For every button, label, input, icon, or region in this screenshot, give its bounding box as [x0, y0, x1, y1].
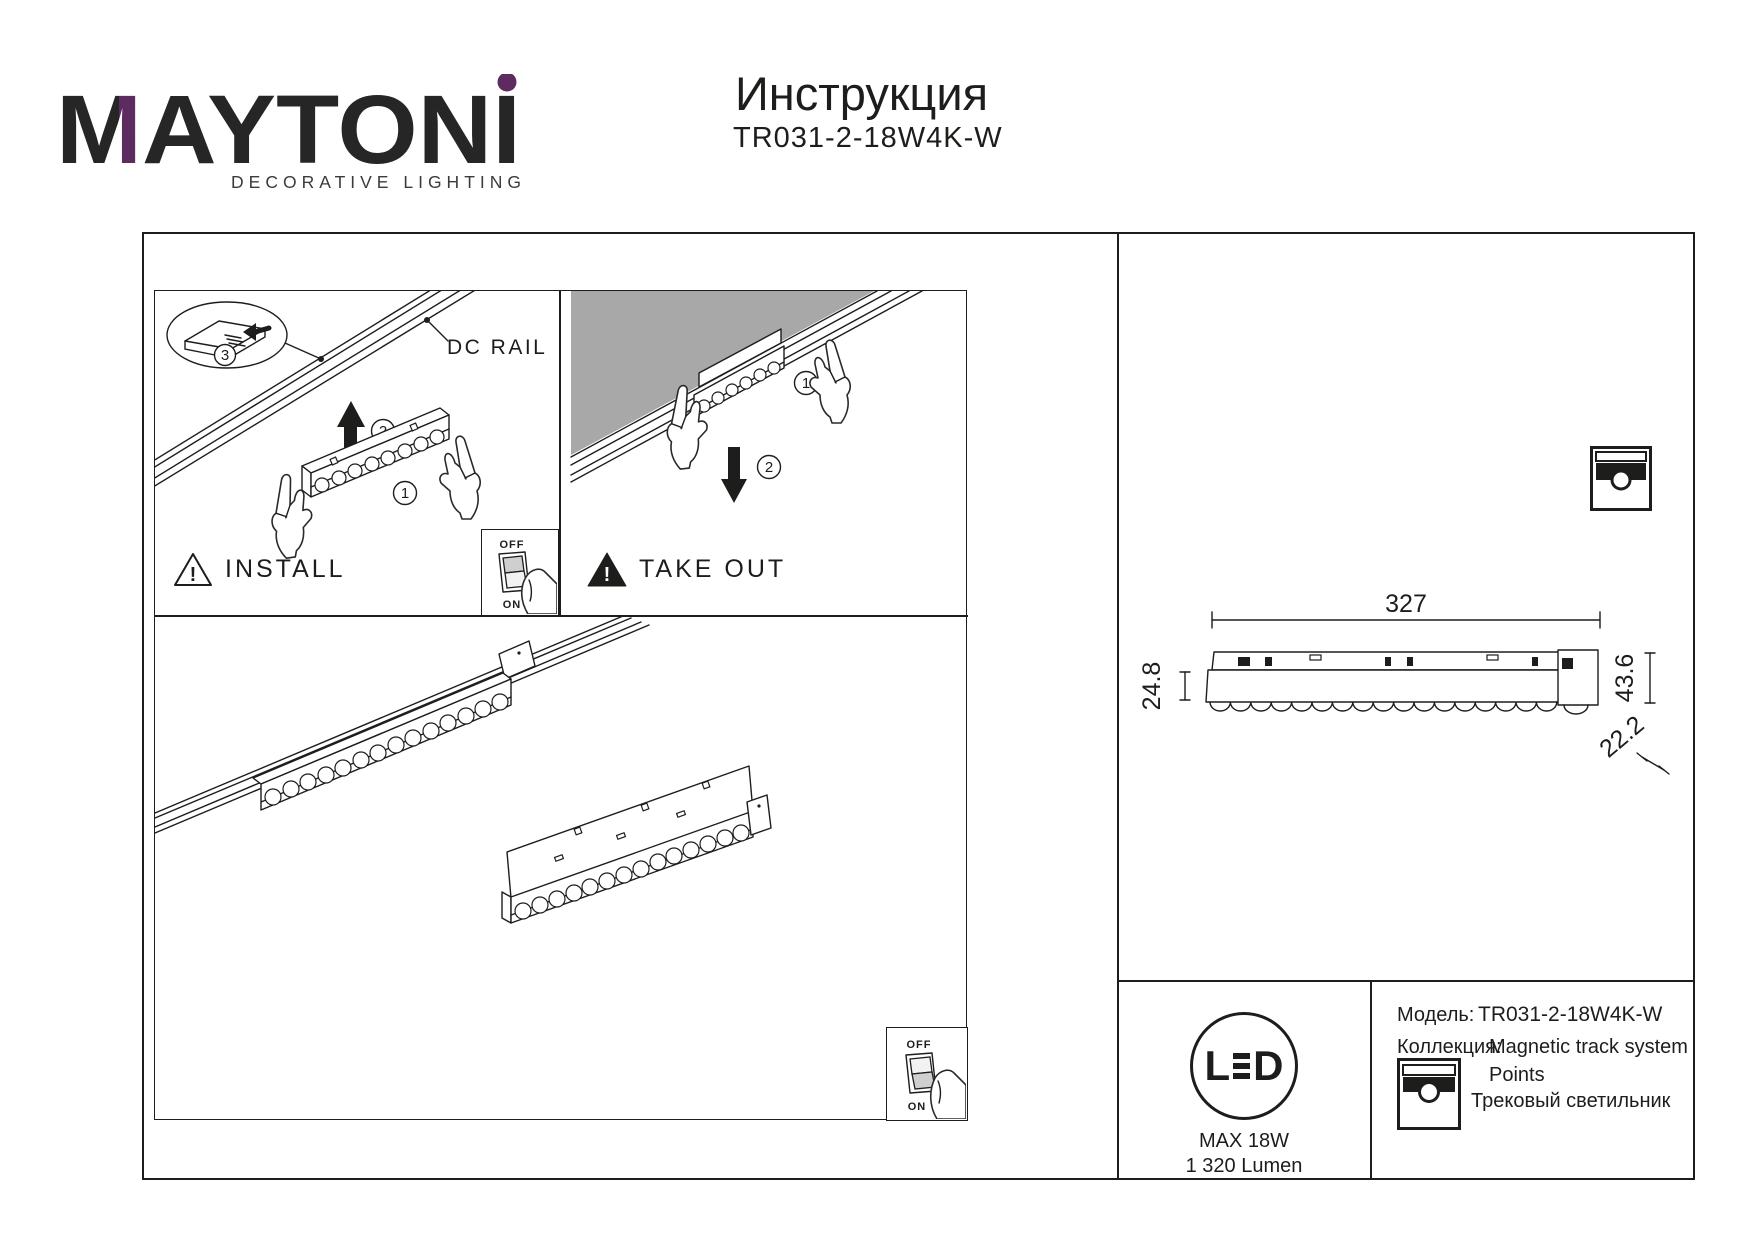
lumens: 1 320 Lumen [1144, 1155, 1344, 1178]
power-off-switch-panel: OFF ON [481, 529, 559, 616]
right-hand [810, 340, 850, 423]
arrow-down-icon [721, 447, 747, 503]
step-1-badge: 1 [802, 375, 810, 392]
points-collection-icon [1397, 1058, 1461, 1130]
svg-text:MAYTONI: MAYTONI [56, 75, 521, 174]
track-light-standalone [502, 766, 771, 923]
pressing-hand [931, 1070, 966, 1119]
max-power: MAX 18W [1144, 1130, 1344, 1153]
panel-divider [1117, 232, 1119, 1178]
led-letter-l: L [1205, 1045, 1231, 1087]
brand-logo: MAYTONI [56, 74, 536, 174]
model-value: TR031-2-18W4K-W [1478, 1003, 1662, 1027]
dimension-drawing: 327 24.8 43.6 22.2 [1130, 560, 1690, 790]
fixture-side-view [1206, 650, 1598, 714]
brand-tagline: DECORATIVE LIGHTING [56, 172, 526, 193]
track-light-on-rail [253, 641, 535, 810]
brand-letters: AYTONI [142, 75, 521, 174]
instruction-sheet: { "colors": {"ink": "#1d1d1b", "purple":… [0, 0, 1754, 1241]
right-hand [440, 436, 480, 519]
power-on-switch-panel: OFF ON [886, 1027, 968, 1121]
depth-dim-line [1637, 753, 1669, 774]
model-number: TR031-2-18W4K-W [733, 122, 1003, 155]
led-badge: L D [1190, 1012, 1298, 1120]
depth-dimension: 22.2 [1594, 711, 1649, 764]
product-type: Трековый светильник [1471, 1090, 1670, 1113]
warning-filled-icon: ! [587, 551, 627, 588]
body-height-dimension: 24.8 [1138, 662, 1166, 711]
total-height-dim-line [1645, 653, 1655, 703]
track-light-fixture [302, 408, 449, 497]
takeout-label: TAKE OUT [639, 555, 786, 584]
warning-outline-icon: ! [173, 551, 213, 588]
pressing-hand [522, 569, 557, 614]
led-letter-e-icon [1233, 1053, 1250, 1080]
collection-label: Коллекция: [1397, 1036, 1502, 1059]
off-label: OFF [907, 1039, 932, 1051]
install-label: INSTALL [225, 555, 346, 584]
step-1-badge: 1 [401, 485, 409, 502]
collection-name: Points [1489, 1064, 1545, 1087]
length-dimension: 327 [1385, 590, 1427, 618]
collection-value: Magnetic track system [1489, 1036, 1688, 1059]
svg-text:!: ! [604, 564, 611, 586]
points-collection-icon [1590, 446, 1652, 511]
on-label: ON [503, 599, 522, 611]
led-letter-d: D [1253, 1045, 1283, 1087]
info-table-top-border [1117, 980, 1695, 982]
info-table-divider [1370, 980, 1372, 1178]
brand-letter-m: M [56, 75, 142, 174]
model-label: Модель: [1397, 1004, 1474, 1027]
takeout-caption: ! TAKE OUT [587, 551, 786, 588]
dc-rail-label: DC RAIL [447, 336, 547, 359]
body-height-dim-line [1180, 672, 1190, 700]
diagram-frame: 3 DC RAIL 2 1 [154, 290, 967, 1120]
mounted-lights-diagram [155, 616, 968, 1121]
install-caption: ! INSTALL [173, 551, 346, 588]
on-label: ON [908, 1101, 927, 1113]
off-label: OFF [500, 539, 525, 551]
step-3-badge: 3 [221, 347, 229, 364]
page-title: Инструкция [735, 66, 988, 121]
step-2-badge: 2 [765, 459, 773, 476]
total-height-dimension: 43.6 [1611, 654, 1639, 703]
svg-text:!: ! [190, 564, 197, 586]
